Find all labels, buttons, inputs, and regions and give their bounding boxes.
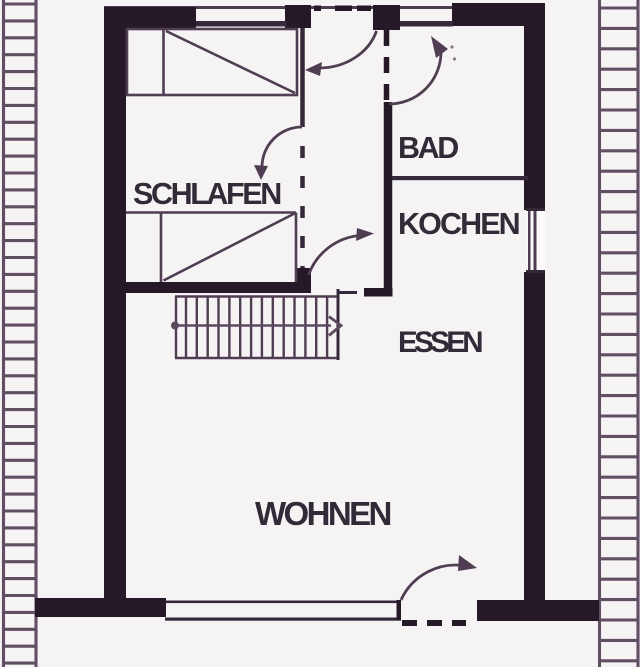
- svg-text:WOHNEN: WOHNEN: [255, 495, 390, 532]
- svg-text:SCHLAFEN: SCHLAFEN: [133, 177, 280, 211]
- svg-text:ESSEN: ESSEN: [398, 326, 482, 359]
- svg-text:BAD: BAD: [398, 131, 458, 165]
- svg-text:KOCHEN: KOCHEN: [398, 207, 519, 241]
